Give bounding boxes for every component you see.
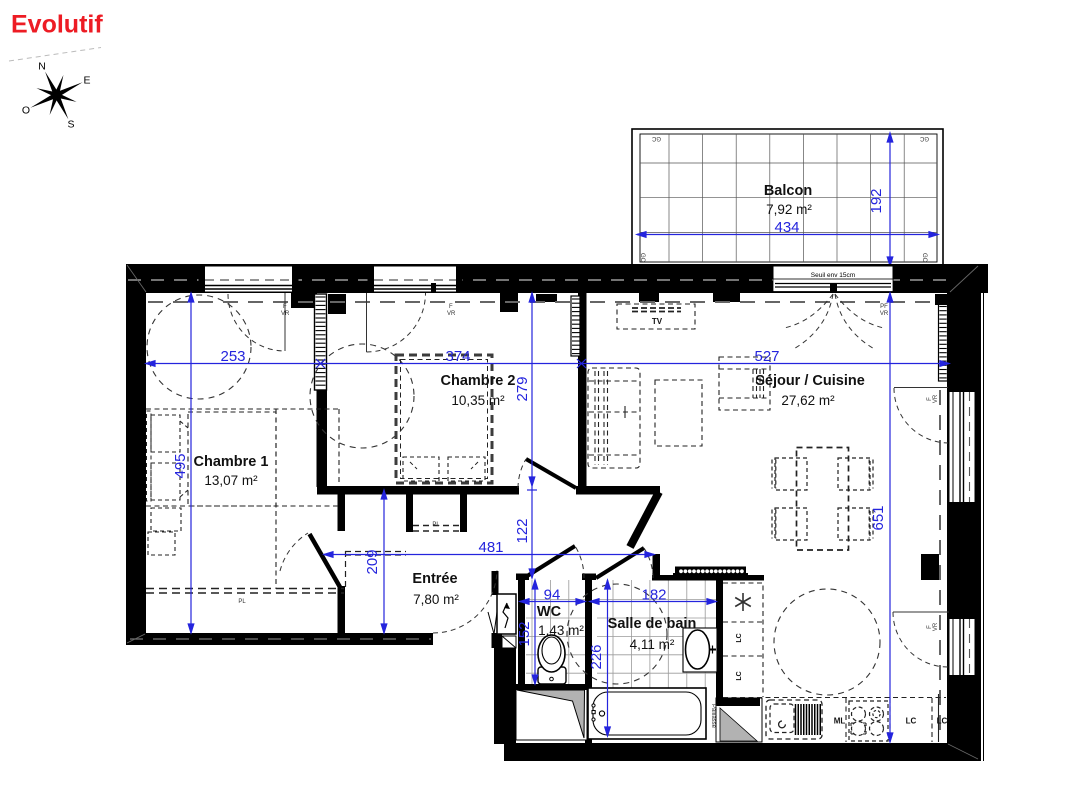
svg-text:495: 495 xyxy=(172,453,189,478)
svg-text:253: 253 xyxy=(220,348,245,365)
svg-text:13,07 m²: 13,07 m² xyxy=(204,473,258,488)
svg-text:209: 209 xyxy=(364,549,381,574)
svg-text:434: 434 xyxy=(774,219,799,236)
svg-text:GC: GC xyxy=(921,253,927,263)
svg-text:F: F xyxy=(283,304,287,310)
svg-text:Séjour / Cuisine: Séjour / Cuisine xyxy=(755,373,865,389)
svg-text:LC: LC xyxy=(906,717,917,726)
svg-text:226: 226 xyxy=(588,644,605,669)
svg-text:94: 94 xyxy=(544,587,561,604)
svg-text:527: 527 xyxy=(754,348,779,365)
svg-text:651: 651 xyxy=(870,505,887,530)
svg-text:Salle de bain: Salle de bain xyxy=(608,616,697,632)
svg-text:VR: VR xyxy=(933,394,939,403)
svg-text:PL: PL xyxy=(238,599,246,605)
svg-text:4,11 m²: 4,11 m² xyxy=(630,637,675,652)
svg-text:GC: GC xyxy=(639,253,645,263)
svg-text:374: 374 xyxy=(445,348,470,365)
svg-text:Evolutif: Evolutif xyxy=(11,11,103,39)
svg-text:VR: VR xyxy=(281,311,290,317)
svg-text:LC: LC xyxy=(736,633,743,642)
svg-text:1,43 m²: 1,43 m² xyxy=(538,623,584,638)
svg-text:PL: PL xyxy=(432,522,440,528)
svg-text:7,80 m²: 7,80 m² xyxy=(413,592,459,607)
svg-text:LC: LC xyxy=(736,671,743,680)
svg-text:Chambre 2: Chambre 2 xyxy=(441,373,516,389)
svg-text:N: N xyxy=(38,60,46,72)
svg-text:GC: GC xyxy=(919,135,929,141)
svg-text:481: 481 xyxy=(478,539,503,556)
svg-text:TV: TV xyxy=(652,317,663,326)
svg-text:Entrée: Entrée xyxy=(412,571,457,587)
svg-text:182: 182 xyxy=(641,587,666,604)
svg-text:ML: ML xyxy=(834,717,846,726)
svg-text:122: 122 xyxy=(514,518,531,543)
svg-text:VR: VR xyxy=(933,622,939,631)
svg-text:279: 279 xyxy=(514,376,531,401)
svg-text:27,62 m²: 27,62 m² xyxy=(781,393,835,408)
svg-text:WC: WC xyxy=(537,604,562,620)
svg-text:PF: PF xyxy=(880,304,888,310)
svg-text:Balcon: Balcon xyxy=(764,183,812,199)
svg-text:Paillasse: Paillasse xyxy=(710,704,716,729)
svg-text:VR: VR xyxy=(447,311,456,317)
svg-text:152: 152 xyxy=(516,621,533,646)
svg-text:192: 192 xyxy=(868,188,885,213)
svg-text:F: F xyxy=(449,304,453,310)
svg-text:E: E xyxy=(84,75,91,87)
svg-text:VR: VR xyxy=(880,311,889,317)
svg-text:S: S xyxy=(67,119,74,131)
svg-text:Seuil env 15cm: Seuil env 15cm xyxy=(811,272,855,279)
svg-text:LC: LC xyxy=(937,717,948,726)
svg-text:GC: GC xyxy=(651,135,661,141)
svg-text:10,35 m²: 10,35 m² xyxy=(451,393,505,408)
svg-text:7,92 m²: 7,92 m² xyxy=(766,202,812,217)
svg-text:O: O xyxy=(22,104,30,116)
svg-text:Chambre 1: Chambre 1 xyxy=(194,454,269,470)
